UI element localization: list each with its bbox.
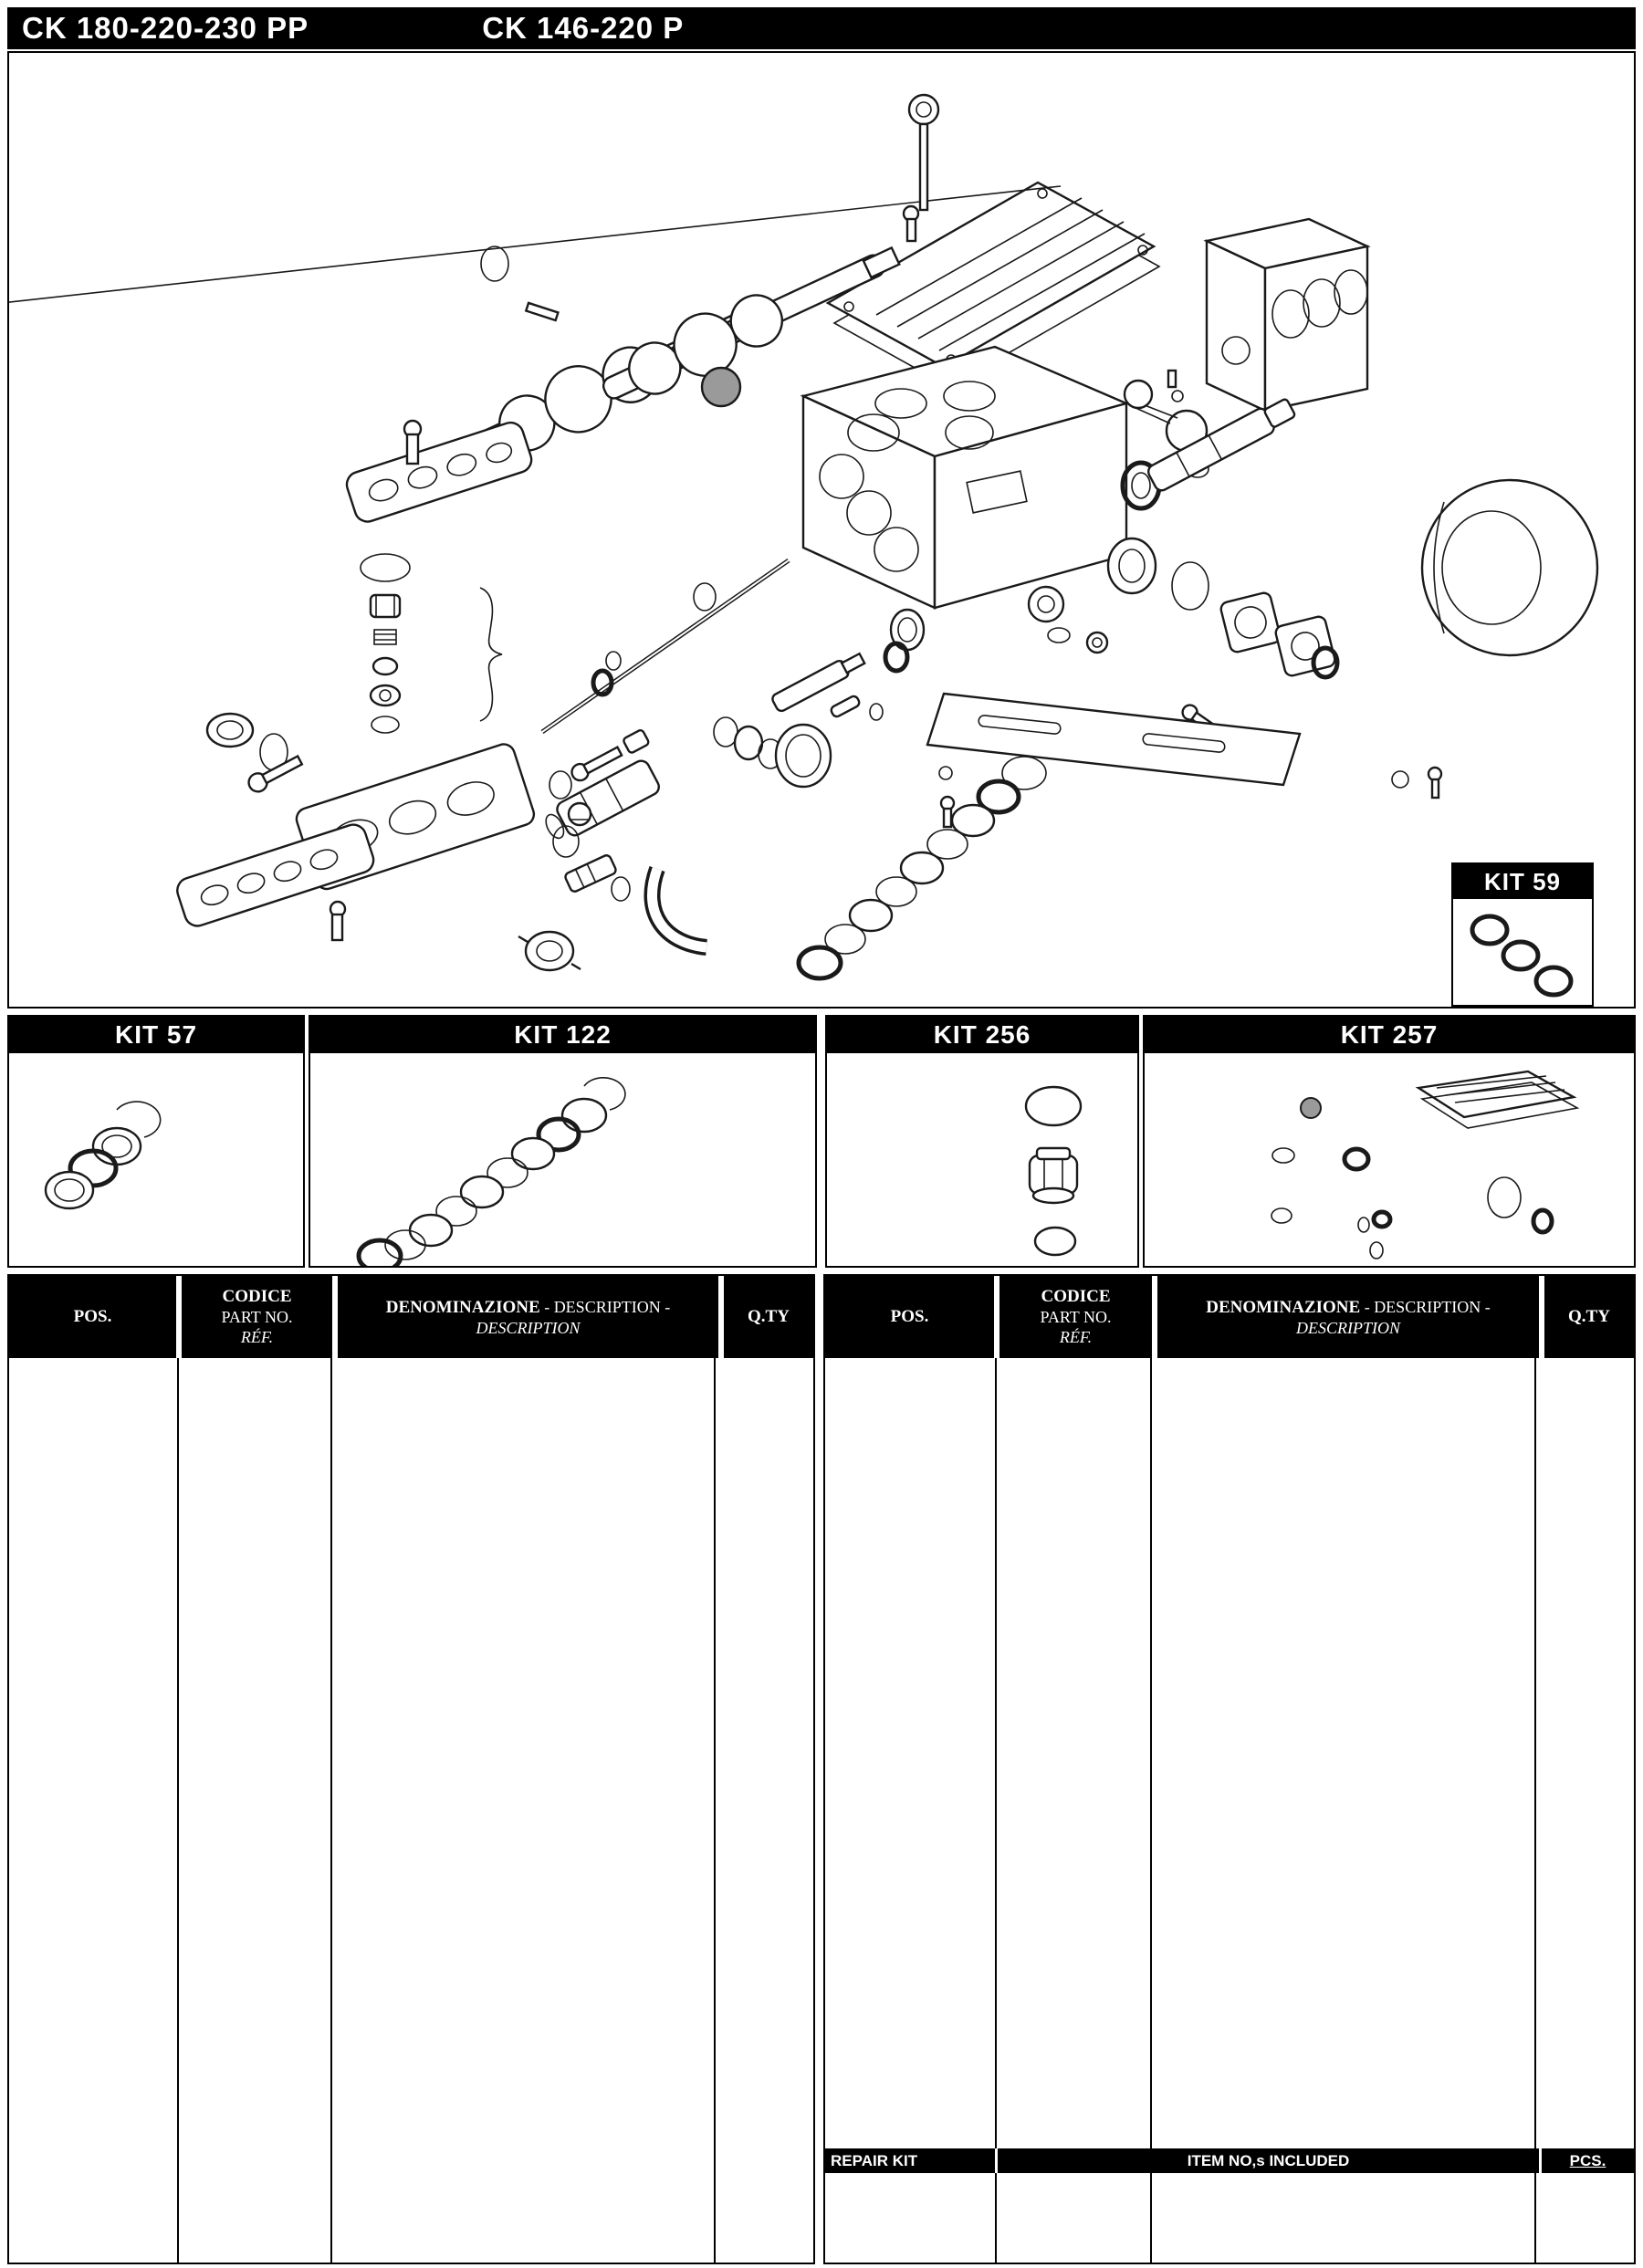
- col-header-code: CODICE PART NO. RÉF.: [182, 1276, 332, 1358]
- washer-screw-73-74-shape: [1392, 768, 1441, 798]
- repair-kit-pcs-label: PCS.: [1542, 2148, 1634, 2173]
- elbow-11-shape: [652, 869, 706, 947]
- col-header-pos: POS.: [9, 1276, 176, 1358]
- kit256-drawing: [827, 1053, 1137, 1266]
- kit122-title: KIT 122: [310, 1017, 815, 1053]
- bolt-10-shape: [404, 421, 421, 464]
- repair-kit-header: REPAIR KIT ITEM NO,s INCLUDED PCS.: [825, 2148, 1634, 2173]
- o-ring-5-shape: [553, 826, 579, 857]
- shim-43-shape: [1219, 591, 1282, 653]
- repair-kit-title: REPAIR KIT: [825, 2148, 995, 2173]
- bearing-41-shape: [1108, 538, 1156, 593]
- col-header-description: DENOMINAZIONE - DESCRIPTION - DESCRIPTIO…: [1157, 1276, 1539, 1358]
- title-bar: CK 180-220-230 PP CK 146-220 P: [7, 7, 1636, 49]
- col-header-code: CODICE PART NO. RÉF.: [999, 1276, 1152, 1358]
- plunger-kit-shape: [1146, 395, 1297, 493]
- kit57-title: KIT 57: [9, 1017, 303, 1053]
- page-title-right: CK 146-220 P: [482, 11, 684, 46]
- cap-46-shape: [702, 368, 740, 406]
- wing-nut-67-shape: [518, 932, 581, 970]
- kit57-box: KIT 57: [7, 1015, 305, 1268]
- repair-kit-items-label: ITEM NO,s INCLUDED: [998, 2148, 1539, 2173]
- plug-48-shape: [1087, 632, 1107, 653]
- pump-crankcase-shape: [803, 347, 1126, 608]
- oil-filling-plug-shape: [904, 95, 938, 241]
- kit59-drawing: [1453, 899, 1592, 1005]
- cover-mini-shape: [1418, 1071, 1577, 1128]
- kit256-box: KIT 256: [825, 1015, 1139, 1268]
- nipple-4-shape: [564, 854, 617, 894]
- bolt-12-shape: [246, 752, 304, 795]
- lower-valves-cover-shape: [174, 821, 377, 929]
- kit257-drawing: [1145, 1053, 1634, 1266]
- snap-ring-27-shape: [481, 246, 508, 281]
- valve-stack-shape: [361, 554, 502, 733]
- table-header-right: POS. CODICE PART NO. RÉF. DENOMINAZIONE …: [825, 1276, 1634, 1358]
- sleeve-77-shape: [776, 725, 831, 787]
- tab-26-shape: [526, 303, 558, 320]
- head-40-shape: [1207, 219, 1367, 411]
- parts-table-left: POS. CODICE PART NO. RÉF. DENOMINAZIONE …: [7, 1274, 815, 2264]
- kit122-box: KIT 122: [309, 1015, 817, 1268]
- kit57-drawing: [9, 1053, 303, 1266]
- kit59-box: KIT 59: [1451, 862, 1594, 1007]
- kit59-title: KIT 59: [1453, 864, 1592, 899]
- kit257-title: KIT 257: [1145, 1017, 1634, 1053]
- exploded-diagram: KIT 59: [7, 51, 1636, 1009]
- oil-sight-glass-shape: [1029, 587, 1063, 622]
- packing-ring-chain-shape: [799, 757, 1046, 978]
- valves-cover-shape: [343, 419, 534, 525]
- connection-pipe-shape: [542, 560, 789, 732]
- kit256-title: KIT 256: [827, 1017, 1137, 1053]
- col-header-qty: Q.TY: [1544, 1276, 1634, 1358]
- table-body-left: [9, 1358, 813, 2264]
- mounting-bracket-shape: [927, 694, 1300, 785]
- o-ring-3-shape: [612, 877, 630, 901]
- piston-pin-shape: [830, 695, 861, 718]
- exploded-diagram-drawing: [9, 53, 1634, 1007]
- o-ring-42-shape: [1172, 562, 1209, 610]
- table-header-left: POS. CODICE PART NO. RÉF. DENOMINAZIONE …: [9, 1276, 813, 1358]
- cap-6-shape: [569, 803, 591, 825]
- safety-cone-shape: [1422, 480, 1597, 655]
- table-body-right: [825, 1358, 1634, 2148]
- col-header-description: DENOMINAZIONE - DESCRIPTION - DESCRIPTIO…: [338, 1276, 718, 1358]
- oil-seal-55b-shape: [885, 643, 907, 671]
- parts-table-right: POS. CODICE PART NO. RÉF. DENOMINAZIONE …: [823, 1274, 1636, 2264]
- repair-kit-body: [825, 2173, 1634, 2264]
- plug-14-shape: [207, 714, 253, 747]
- o-ring-7-shape: [549, 771, 571, 799]
- snap-ring-76-shape: [870, 704, 883, 720]
- kit122-drawing: [310, 1053, 815, 1266]
- valve-assembly-glyph: [1030, 1148, 1077, 1203]
- gasket-49-shape: [1048, 628, 1070, 643]
- col-header-qty: Q.TY: [724, 1276, 813, 1358]
- kit257-box: KIT 257: [1143, 1015, 1636, 1268]
- bolt-10b-shape: [330, 902, 345, 940]
- col-header-pos: POS.: [825, 1276, 994, 1358]
- page-title-left: CK 180-220-230 PP: [22, 11, 309, 46]
